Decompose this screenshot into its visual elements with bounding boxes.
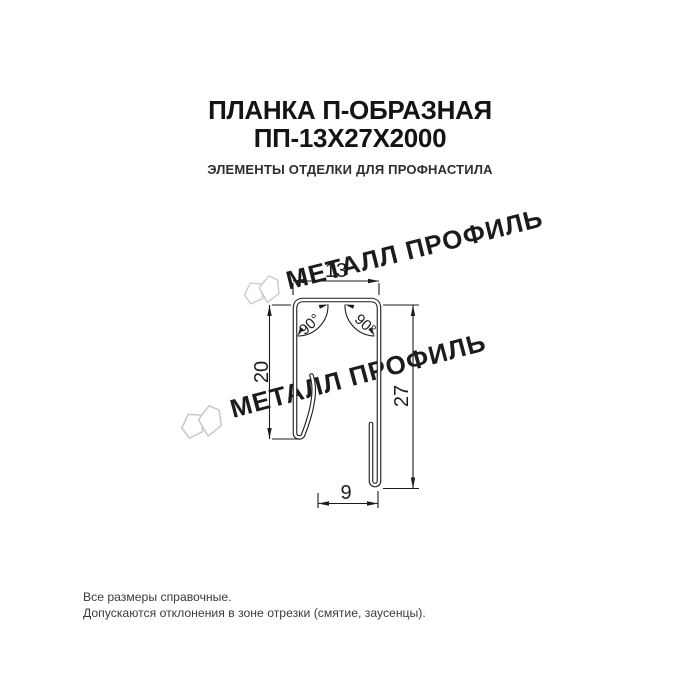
arc-arrow-icon (344, 303, 354, 309)
dim-arrow-icon (318, 501, 329, 505)
footer-note-line2: Допускаются отклонения в зоне отрезки (с… (83, 606, 426, 622)
dimension-bottom-width: 9 (318, 482, 378, 508)
watermark-middle: МЕТАЛЛ ПРОФИЛЬ (177, 327, 491, 443)
dim-left-height-value: 20 (251, 361, 273, 383)
dim-arrow-icon (411, 478, 415, 489)
watermark-top: МЕТАЛЛ ПРОФИЛЬ (240, 202, 547, 307)
arc-arrow-icon (319, 303, 329, 309)
dim-arrow-icon (267, 305, 271, 316)
metall-profil-logo-icon (178, 404, 225, 443)
angle-right-value: 90° (351, 311, 379, 339)
dim-top-width-value: 13 (325, 260, 347, 282)
dim-bottom-width-value: 9 (340, 482, 351, 504)
dim-arrow-icon (411, 305, 415, 316)
dim-arrow-icon (368, 279, 379, 283)
dim-arrow-icon (267, 428, 271, 439)
dim-arrow-icon (367, 501, 378, 505)
dimension-right-height: 27 (383, 305, 419, 489)
angle-annotation-left: 90° (296, 303, 329, 339)
footer-note-line1: Все размеры справочные. (83, 590, 426, 606)
footer-notes: Все размеры справочные. Допускаются откл… (83, 590, 426, 621)
dim-right-height-value: 27 (391, 385, 413, 407)
metall-profil-logo-icon (241, 274, 282, 307)
product-drawing-page: ПЛАНКА П-ОБРАЗНАЯ ПП-13Х27Х2000 ЭЛЕМЕНТЫ… (0, 0, 700, 700)
angle-annotation-right: 90° (344, 303, 379, 339)
dimension-left-height: 20 (251, 305, 299, 439)
angle-left-value: 90° (296, 311, 324, 339)
